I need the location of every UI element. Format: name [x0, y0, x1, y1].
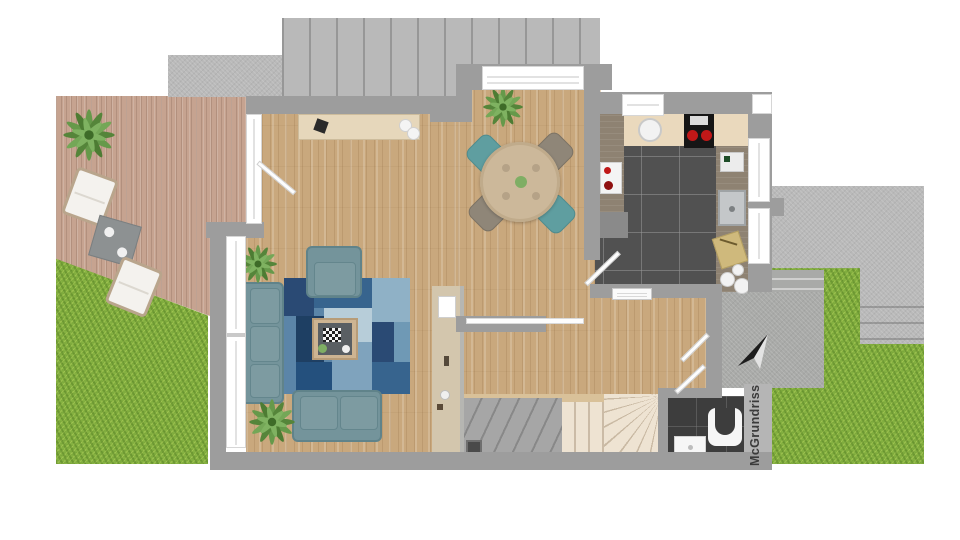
table-ball: [342, 345, 350, 353]
wall-bottom: [210, 452, 772, 470]
window-glass-line: [487, 76, 579, 78]
coat-rack-wall: [432, 286, 464, 452]
small-appliance: [720, 152, 744, 172]
rug-patch: [372, 278, 410, 322]
dining-table: [480, 142, 560, 222]
loveseat-cushion: [340, 396, 378, 430]
table-dot: [103, 226, 115, 238]
kitchen-base-cabinet: [598, 212, 628, 238]
window-glass-line: [235, 341, 237, 445]
armchair-cushion: [314, 262, 356, 296]
rug-patch: [372, 362, 410, 394]
sofa-cushion: [250, 364, 280, 398]
patio-step-lines: [860, 292, 924, 342]
toilet-bowl: [715, 408, 735, 435]
wall-hall-right: [706, 292, 722, 398]
wall-kitchen-top: [590, 92, 772, 114]
kitchen-window-top: [622, 94, 664, 116]
table-centerpiece: [515, 176, 527, 188]
window-glass-line: [627, 104, 659, 106]
exterior-steps-lower: [282, 66, 460, 97]
north-arrow-icon: [738, 334, 772, 370]
chessboard: [323, 328, 341, 342]
coat-hook: [440, 390, 450, 400]
burner: [687, 130, 698, 141]
cooktop-grille: [690, 116, 708, 125]
kitchen-counter-top: [612, 114, 748, 146]
wall-stub-right: [768, 198, 784, 216]
loveseat-cushion: [300, 396, 338, 430]
plant-dining: [482, 86, 524, 128]
wall-kitchen-bottom: [590, 284, 722, 298]
coffee-machine: [600, 162, 622, 194]
coat-hook: [444, 356, 449, 366]
driveway-slab: [168, 55, 290, 97]
wall-left: [210, 222, 226, 454]
appliance-dot: [724, 156, 730, 162]
window-glass-line: [235, 241, 237, 329]
wall-kitchen-left: [584, 90, 600, 260]
toilet: [708, 408, 742, 446]
place-setting: [532, 192, 540, 200]
sideboard-item-dark: [313, 118, 328, 133]
radiator: [612, 288, 652, 300]
place-setting: [532, 164, 540, 172]
window-glass-line: [758, 213, 760, 259]
wall-frame: [438, 296, 456, 318]
kitchen-window-corner: [752, 94, 772, 114]
place-setting: [502, 164, 510, 172]
deck-door-glazing: [246, 114, 262, 224]
wall-bathroom-left: [658, 396, 668, 454]
round-basin: [638, 118, 662, 142]
machine-dot: [604, 167, 611, 174]
sink-drain: [729, 206, 735, 212]
floor-plan-render: McGrundriss: [0, 0, 960, 540]
plate: [732, 264, 744, 276]
chair-seat-line: [118, 281, 148, 295]
table-plant: [318, 344, 327, 353]
window-band-left: [226, 236, 246, 448]
knife: [720, 238, 738, 245]
stairs-winder-flight: [604, 394, 664, 456]
window-glass-line: [758, 143, 760, 197]
coat-hook: [437, 404, 443, 410]
armchair: [306, 246, 362, 298]
radiator-line: [617, 296, 647, 297]
porch-steps: [770, 270, 824, 292]
place-setting: [502, 192, 510, 200]
radiator-line: [617, 293, 647, 294]
machine-dot: [604, 181, 613, 190]
kitchen-sink: [718, 190, 746, 226]
wall-jog-dining: [430, 96, 472, 122]
kitchen-window-right-1: [748, 138, 770, 202]
wall-bay-left: [456, 64, 472, 98]
plant-deck: [62, 108, 116, 162]
window-mullion: [227, 333, 245, 337]
sofa-cushion: [250, 326, 280, 362]
plate: [720, 272, 735, 287]
sliding-door-open: [466, 318, 584, 324]
sideboard-cup: [407, 127, 420, 140]
watermark-label: McGrundriss: [748, 394, 762, 466]
loveseat: [292, 390, 382, 442]
stairs-straight-flight: [562, 402, 604, 456]
chair-seat-line: [74, 192, 105, 205]
sofa-cushion: [250, 288, 280, 324]
rug-patch: [372, 322, 394, 362]
bay-window: [482, 66, 584, 90]
coffee-table: [312, 318, 358, 360]
sideboard: [298, 114, 420, 140]
window-glass-line: [253, 119, 255, 219]
cooktop: [684, 114, 714, 148]
basin-drain: [688, 445, 693, 450]
kitchen-window-right-2: [748, 208, 770, 264]
burner: [701, 130, 712, 141]
exterior-steps-top: [282, 18, 600, 68]
window-glass-line: [487, 82, 579, 84]
plant-living-bottom: [248, 398, 296, 446]
